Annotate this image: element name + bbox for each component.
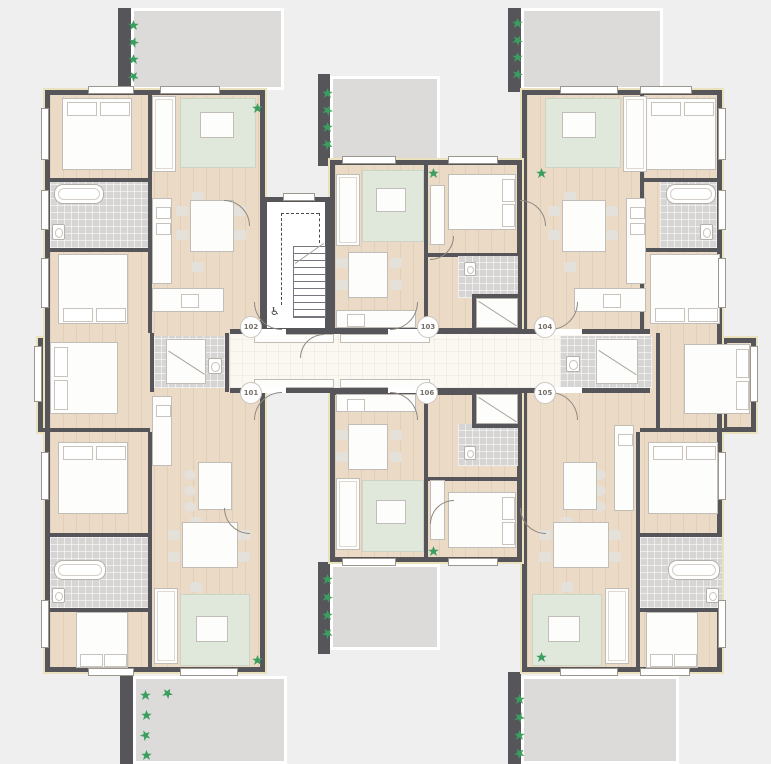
kitchen-island [563, 462, 597, 510]
sofa [154, 588, 178, 664]
balcony-door [180, 668, 238, 676]
coffee-table [548, 616, 580, 642]
sofa [152, 96, 176, 172]
bathtub [668, 560, 720, 580]
window [640, 668, 690, 676]
corridor-bench [340, 334, 430, 343]
bed [62, 98, 132, 170]
unit-label-102: 102 [240, 316, 262, 338]
elevator [476, 298, 518, 328]
coffee-table [562, 112, 596, 138]
island-stools [184, 470, 196, 480]
bed [448, 492, 516, 548]
bed [646, 612, 698, 668]
bed [58, 254, 128, 324]
terrace [133, 676, 287, 764]
window [718, 108, 726, 160]
window [750, 346, 758, 402]
bed [684, 344, 750, 414]
toilet [700, 224, 713, 240]
bathtub [54, 560, 106, 580]
dining-chairs [336, 258, 348, 268]
wall [225, 333, 229, 392]
toilet [464, 262, 476, 276]
toilet [208, 358, 222, 374]
balcony-door [560, 668, 618, 676]
terrace-wall [318, 74, 330, 166]
dining-table [553, 522, 609, 568]
dining-table [348, 252, 388, 298]
window [41, 452, 49, 500]
stair-treads [293, 246, 326, 318]
terrace-wall [508, 8, 521, 92]
toilet [566, 356, 580, 372]
elevator [476, 394, 518, 424]
wall [644, 248, 720, 252]
wall [148, 432, 152, 672]
dining-table [348, 424, 388, 470]
kitchen-counter [152, 198, 172, 284]
kitchen-counter [574, 288, 646, 312]
terrace [521, 8, 663, 90]
window [718, 452, 726, 500]
kitchen-counter [626, 198, 646, 284]
dining-chairs [176, 206, 188, 216]
window [448, 558, 498, 566]
window [88, 668, 134, 676]
toilet [52, 224, 65, 240]
bathtub [666, 184, 716, 204]
unit-label-105: 105 [534, 382, 556, 404]
bed [648, 442, 718, 514]
bed [58, 442, 128, 514]
window [718, 258, 726, 308]
window [88, 86, 134, 94]
wall [50, 248, 148, 252]
terrace [330, 76, 440, 164]
stair-path [281, 213, 282, 305]
window [41, 258, 49, 308]
bathtub [54, 184, 104, 204]
balcony-door [160, 86, 220, 94]
kitchen-counter [614, 425, 634, 511]
bed [76, 612, 128, 668]
dining-table [562, 200, 606, 252]
wall [38, 428, 150, 432]
bed [646, 98, 716, 170]
terrace-wall [118, 8, 131, 92]
toilet [52, 588, 65, 603]
unit-label-101: 101 [240, 382, 262, 404]
coffee-table [376, 500, 406, 524]
window [718, 600, 726, 648]
unit-label-106: 106 [416, 382, 438, 404]
stair-path [319, 213, 320, 243]
bed [650, 254, 720, 324]
window [448, 156, 498, 164]
window [41, 600, 49, 648]
balcony-door [560, 86, 618, 94]
window [283, 193, 315, 201]
corridor-wall [230, 388, 650, 393]
balcony-door [342, 558, 396, 566]
shower [596, 339, 638, 384]
kitchen-island [198, 462, 232, 510]
terrace [330, 564, 440, 650]
wall [424, 165, 428, 333]
sofa [336, 174, 360, 246]
sofa [336, 478, 360, 550]
dining-chairs [336, 430, 348, 440]
window [718, 190, 726, 230]
coffee-table [200, 112, 234, 138]
terrace [521, 676, 679, 764]
kitchen-counter [152, 396, 172, 466]
stair-path [281, 213, 319, 214]
toilet [464, 446, 476, 460]
sofa [605, 588, 629, 664]
bed [448, 174, 516, 230]
unit-label-104: 104 [534, 316, 556, 338]
kitchen-counter [152, 288, 224, 312]
wall [656, 333, 660, 430]
balcony-door [342, 156, 396, 164]
window [41, 108, 49, 160]
unit-label-103: 103 [417, 316, 439, 338]
dining-chairs [168, 530, 180, 540]
window [640, 86, 692, 94]
terrace-wall [120, 672, 133, 764]
terrace [131, 8, 284, 90]
window [34, 346, 42, 402]
window [41, 190, 49, 230]
coffee-table [196, 616, 228, 642]
coffee-table [376, 188, 406, 212]
shower [166, 339, 206, 384]
wall [424, 394, 428, 558]
sofa [623, 96, 647, 172]
dining-chairs [548, 206, 560, 216]
dining-table [182, 522, 238, 568]
wall [640, 428, 724, 432]
bed [50, 342, 118, 414]
floor-plan: ♿ 102 101 103 106 104 105 [0, 0, 771, 764]
